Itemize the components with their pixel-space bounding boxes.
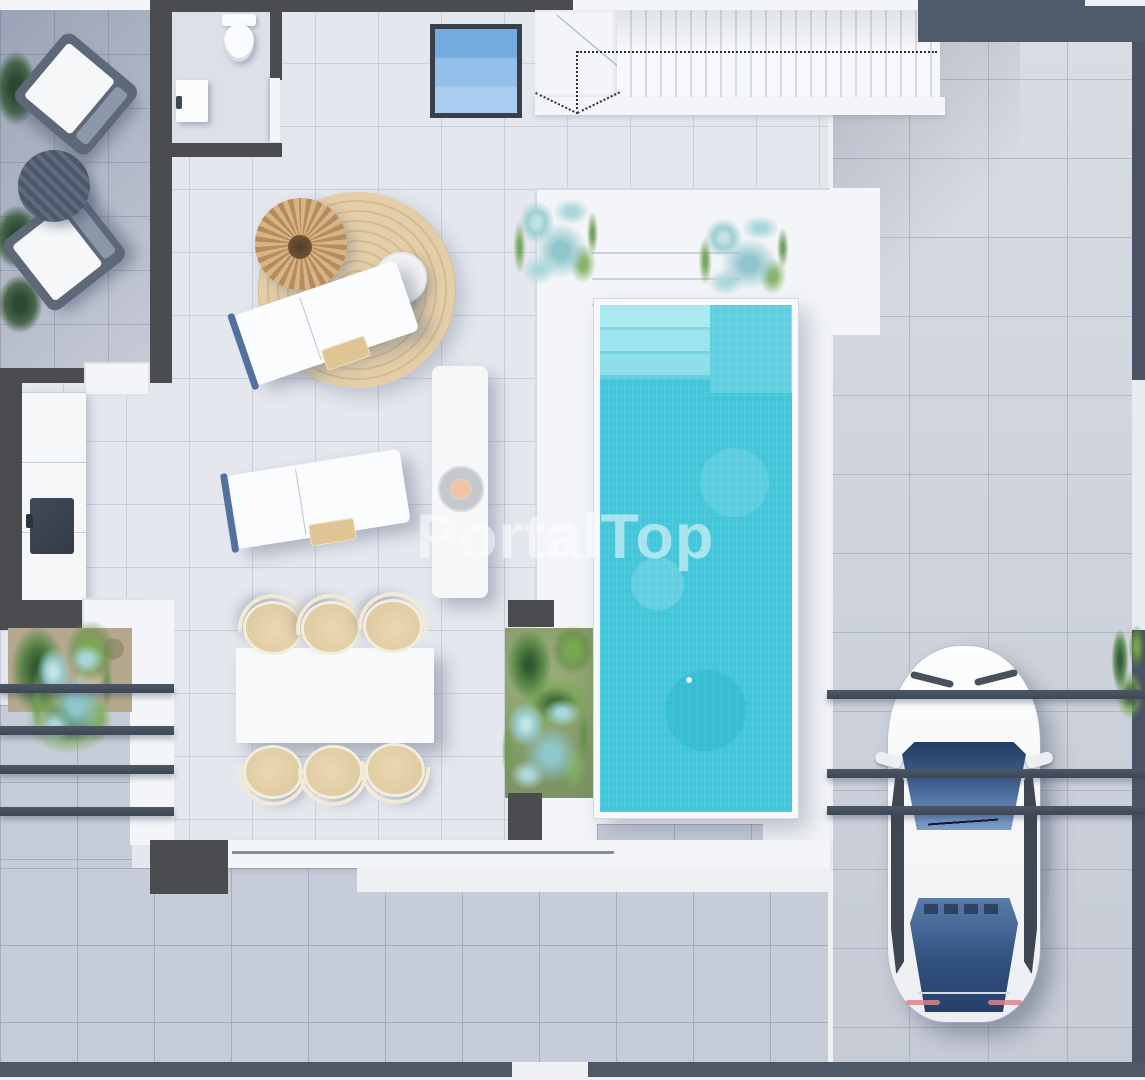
pergola-beam-left-1 [0, 684, 174, 693]
walkway-track-line [232, 851, 614, 854]
bathroom-wall-bottom [150, 143, 282, 157]
perimeter-wall-bottom-right [588, 1062, 1145, 1077]
perimeter-wall-top-corner [1085, 0, 1145, 6]
planter-top-right [693, 206, 795, 306]
perimeter-wall-right-upper [1132, 42, 1145, 380]
stairs-top-edge [573, 0, 918, 10]
terrace-coffee-table [18, 150, 90, 222]
rattan-pouf [255, 198, 347, 290]
pool-entry-steps [600, 305, 710, 401]
walkway-band-lower [357, 868, 830, 892]
cooktop-sink [30, 498, 74, 554]
stair-arrow-vertical [576, 51, 578, 109]
pergola-beam-carport-3 [827, 806, 1145, 815]
pool-pillar-top [508, 600, 554, 627]
palm-right-edge [1108, 616, 1145, 726]
walkway-band-upper [228, 840, 830, 868]
car-taillight-right [988, 1000, 1022, 1005]
side-terrace-top-edge [0, 0, 150, 10]
side-yard-flowers [26, 632, 118, 756]
pool-tanning-shelf [710, 305, 792, 393]
rear-patio-floor [0, 868, 830, 1080]
wall-vertical-left [150, 0, 172, 383]
pergola-beam-left-4 [0, 807, 174, 816]
white-car [888, 646, 1040, 1022]
car-side-window-right [1024, 768, 1037, 974]
planter-top-left [508, 188, 604, 296]
kitchen-counter [22, 392, 86, 602]
bathroom-wall-right [270, 0, 282, 80]
lounger-fold-line [295, 469, 306, 534]
bottom-wall-gap [512, 1062, 588, 1080]
pergola-beam-left-3 [0, 765, 174, 774]
car-side-window-left [891, 768, 904, 974]
perimeter-wall-top [918, 0, 1145, 42]
stairs-bottom-band [535, 97, 945, 115]
pergola-beam-carport-1 [827, 690, 1145, 699]
perimeter-wall-bottom-left [0, 1062, 512, 1077]
lounger-fold-line [299, 297, 321, 360]
kitchen-wall-left [0, 368, 22, 630]
car-rear-deck-slits [924, 904, 1004, 914]
pergola-beam-carport-2 [827, 769, 1145, 778]
cooktop-handle [26, 514, 33, 528]
kitchen-window-top [84, 362, 150, 396]
stair-arrow-horizontal [577, 51, 937, 53]
car-taillight-left [906, 1000, 940, 1005]
skylight [430, 24, 522, 118]
sink-faucet [176, 96, 182, 109]
wall-top-band [150, 0, 573, 12]
car-rear-window [910, 898, 1018, 1012]
car-trunk-line [918, 992, 1010, 994]
planter-pool-side-flowers [496, 688, 596, 802]
dining-table [236, 648, 434, 743]
bathroom-door [270, 78, 280, 142]
pergola-beam-left-2 [0, 726, 174, 735]
pool-sparkle [686, 677, 692, 683]
floor-plan-render: PortalTop [0, 0, 1145, 1080]
watermark: PortalTop [416, 504, 714, 570]
side-gate [1132, 380, 1145, 630]
staircase-shading [617, 10, 940, 97]
pool-deck-corner [830, 188, 880, 335]
corner-pillar-block [150, 840, 228, 894]
